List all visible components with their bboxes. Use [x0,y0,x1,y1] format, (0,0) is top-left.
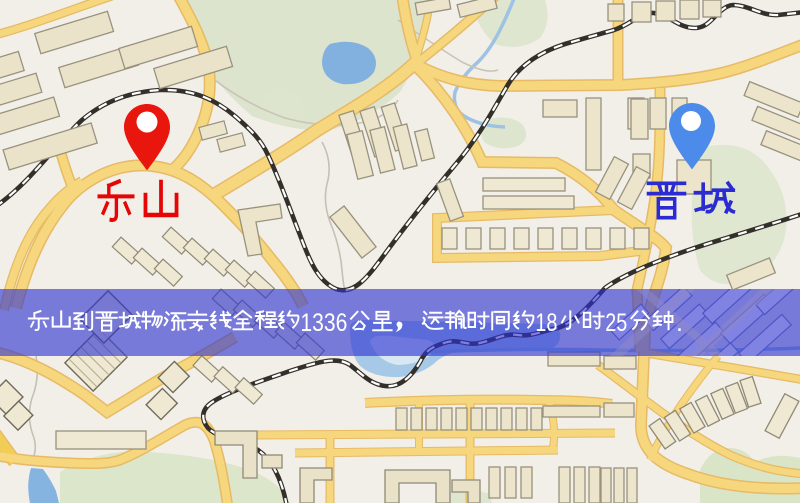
svg-text:25: 25 [605,309,627,337]
svg-text:18: 18 [535,309,557,337]
svg-text:.: . [676,309,683,337]
svg-text:1336: 1336 [300,309,347,337]
